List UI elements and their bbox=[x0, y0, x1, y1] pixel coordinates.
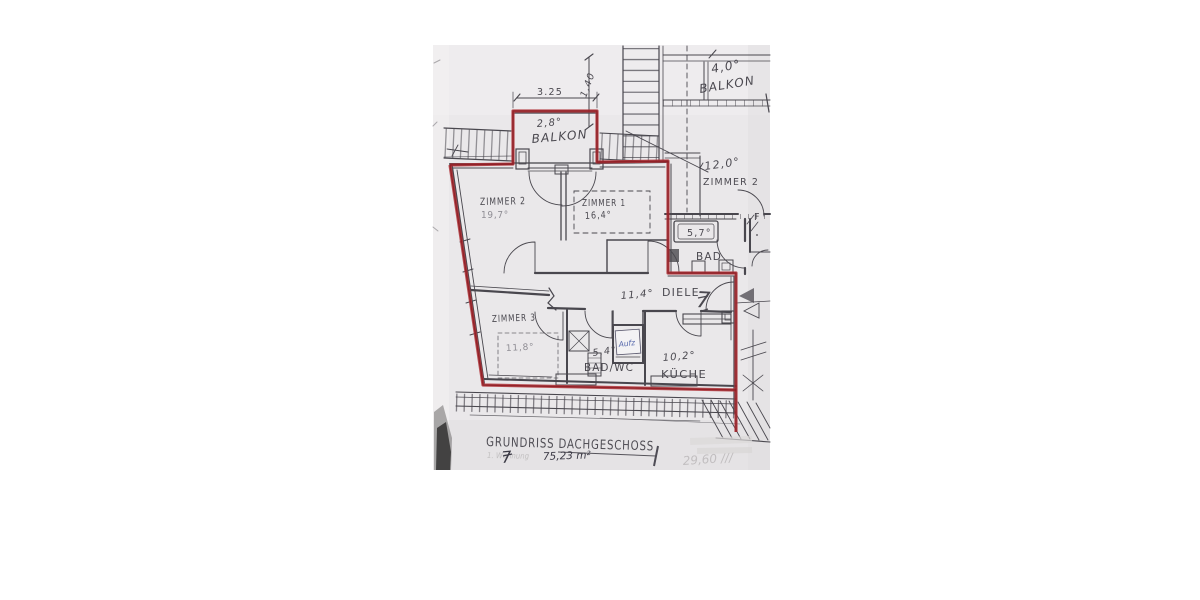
kueche-label: KÜCHE bbox=[661, 368, 707, 381]
radiator-bad bbox=[668, 249, 679, 262]
badwc-label: BAD/WC bbox=[584, 362, 634, 374]
zimmer2-label: ZIMMER 2 bbox=[480, 196, 526, 208]
door-mark-f: F bbox=[754, 212, 761, 223]
neighbor-zimmer2-label: ZIMMER 2 bbox=[703, 177, 759, 188]
bad-label: BAD bbox=[696, 251, 722, 263]
paper-shade-left bbox=[433, 45, 449, 470]
floorplan-svg: 2,8° BALKON 4,0° BALKON 12,0° ZIMMER 2 Z… bbox=[0, 0, 1200, 600]
diele-label: DIELE bbox=[662, 286, 700, 299]
zimmer1-label: ZIMMER 1 bbox=[582, 198, 626, 209]
balkon-top-area: 2,8° bbox=[536, 117, 563, 130]
paper-shade-right bbox=[748, 45, 770, 470]
scanned-floorplan-page: { "footer": { "title": "GRUNDRISS DACHGE… bbox=[0, 0, 1200, 600]
bad-area: 5,7° bbox=[687, 228, 712, 239]
zimmer3-label: ZIMMER 3 bbox=[492, 312, 536, 325]
dim-balkon-width: 3.25 bbox=[537, 87, 563, 98]
zimmer1-area: 16,4° bbox=[585, 210, 613, 222]
zimmer3-area: 11,8° bbox=[506, 343, 535, 354]
zimmer2-area: 19,7° bbox=[481, 210, 509, 221]
total-area-handwritten: 75,23 m² bbox=[543, 449, 592, 463]
